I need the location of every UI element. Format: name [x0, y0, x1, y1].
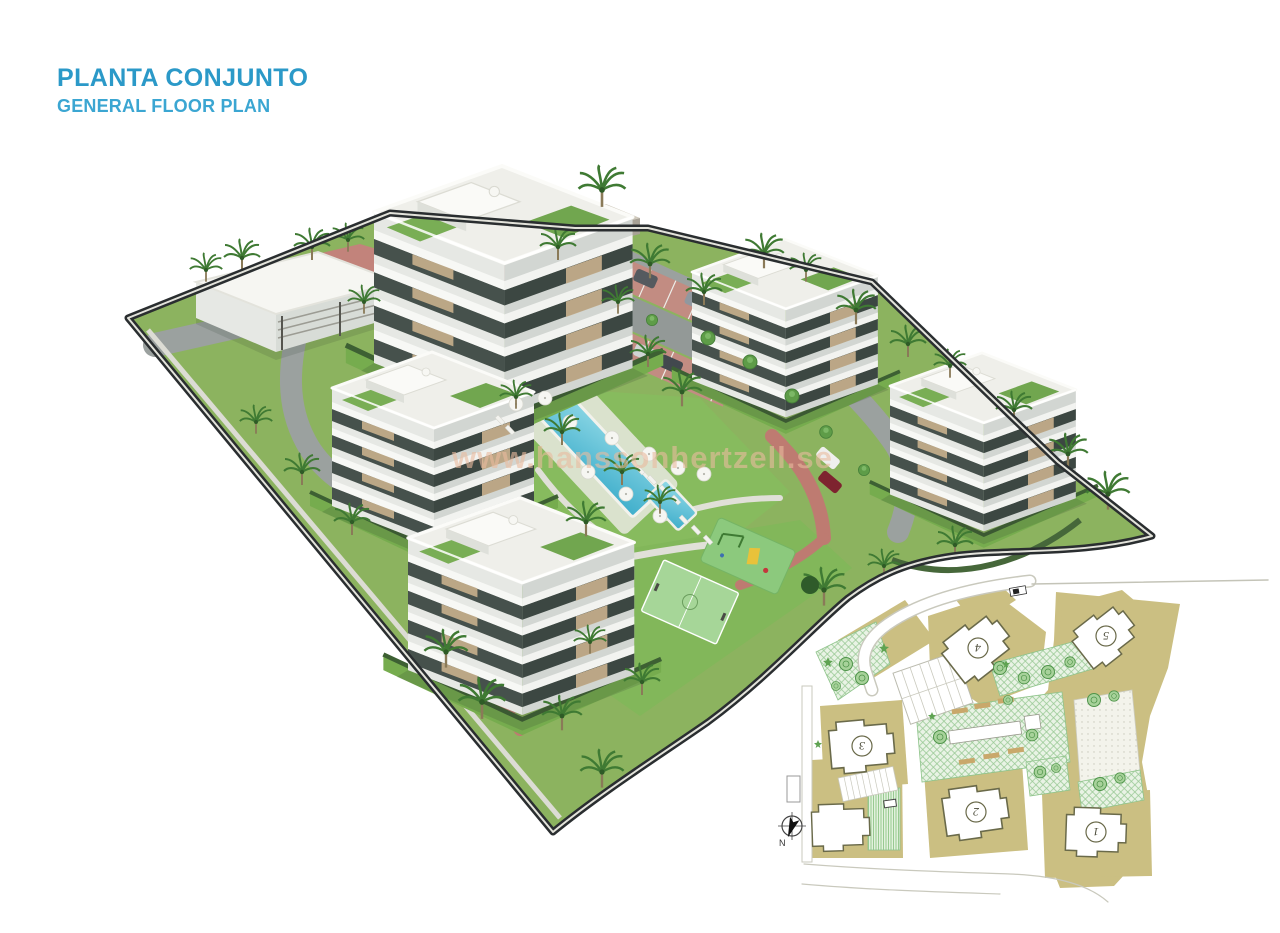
north-label: N	[779, 838, 786, 848]
svg-text:2: 2	[973, 805, 979, 819]
plan-building-label-5: 5	[1096, 626, 1116, 646]
aerial-render: 4 5 3 2 1	[0, 0, 1280, 933]
svg-text:4: 4	[975, 641, 981, 655]
page-title: PLANTA CONJUNTO	[57, 64, 308, 93]
plan-building-label-4: 4	[968, 638, 988, 658]
svg-text:1: 1	[1093, 825, 1099, 839]
page-subtitle: GENERAL FLOOR PLAN	[57, 96, 308, 117]
plan-gate-icon	[787, 776, 800, 802]
plan-side-road	[802, 686, 812, 862]
svg-text:5: 5	[1103, 629, 1109, 643]
brochure-page: PLANTA CONJUNTO GENERAL FLOOR PLAN www.h…	[0, 0, 1280, 933]
plan-building-label-2: 2	[966, 802, 986, 822]
plan-building-partial-footprint	[811, 803, 870, 852]
plan-barrier-icon	[884, 799, 897, 808]
plan-building-label-1: 1	[1086, 822, 1106, 842]
page-header: PLANTA CONJUNTO GENERAL FLOOR PLAN	[57, 64, 308, 117]
plan-building-label-3: 3	[852, 736, 872, 756]
site-plan-inset: 4 5 3 2 1	[778, 580, 1268, 902]
svg-text:3: 3	[859, 739, 866, 753]
plan-plaza	[1074, 690, 1140, 782]
